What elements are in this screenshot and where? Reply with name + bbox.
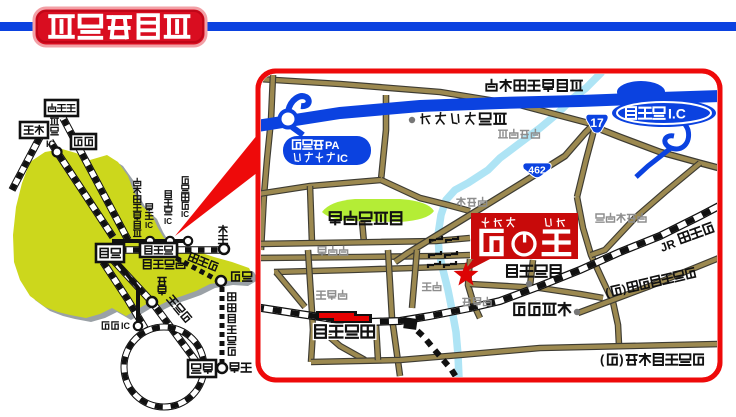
svg-text:PA: PA (325, 140, 340, 152)
svg-text:): ) (619, 352, 623, 367)
svg-text:IC: IC (337, 153, 348, 165)
svg-text:462: 462 (528, 164, 546, 176)
svg-text:(: ( (600, 352, 605, 367)
svg-text:IC: IC (145, 221, 153, 230)
svg-text:17: 17 (590, 116, 604, 130)
svg-text:I.C: I.C (668, 106, 686, 122)
svg-text:IC: IC (164, 217, 172, 226)
svg-text:IC: IC (181, 210, 189, 219)
svg-text:IC: IC (46, 139, 56, 149)
svg-text:IC: IC (121, 321, 131, 331)
